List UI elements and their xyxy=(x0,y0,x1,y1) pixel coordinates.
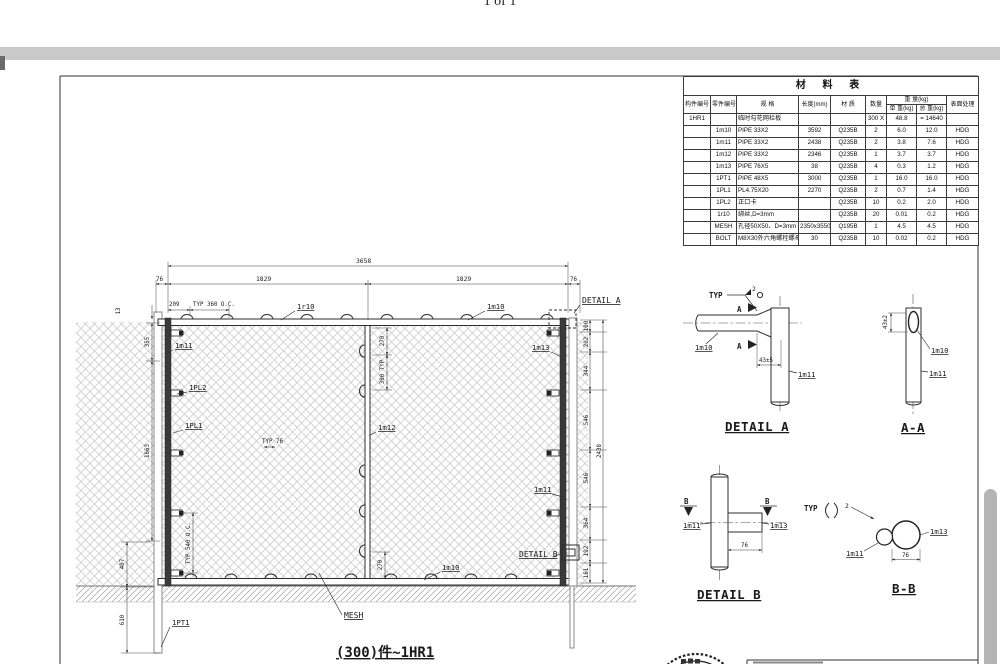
table-cell: 30 xyxy=(799,234,831,246)
dim-label: 76 xyxy=(156,277,163,283)
dim-label: TYP 360 O.C. xyxy=(193,302,235,308)
table-cell xyxy=(684,186,711,198)
table-cell: 1.2 xyxy=(917,162,947,174)
section-letter: A xyxy=(737,305,742,314)
table-row: 1PT1PIPE 48X53000Q235B116.016.0HDG xyxy=(684,174,979,186)
table-cell: Q235B xyxy=(831,138,866,150)
dim-label: 43±5 xyxy=(759,358,773,364)
table-row: BOLTM8X30外六角螺栓螺母30Q235B100.020.2HDG xyxy=(684,234,979,246)
table-cell: 16.0 xyxy=(887,174,917,186)
table-cell: 绑丝,D=3mm xyxy=(737,210,799,222)
dim-label: 192 xyxy=(584,546,590,556)
col-header: 材 质 xyxy=(831,96,866,114)
table-cell: 4 xyxy=(866,162,887,174)
table-cell: 孔径50X50、D=3mm xyxy=(737,222,799,234)
table-cell: HDG xyxy=(947,126,979,138)
table-row: 1m13PIPE 76X538Q235B40.31.2HDG xyxy=(684,162,979,174)
table-cell: 300 X xyxy=(866,114,887,126)
dim-label: 610 xyxy=(120,614,126,625)
vertical-scrollbar-thumb[interactable] xyxy=(984,489,997,664)
table-row: 1r10绑丝,D=3mmQ235B200.010.2HDG xyxy=(684,210,979,222)
table-cell: 12.0 xyxy=(917,126,947,138)
table-row: 1m12PIPE 33X22346Q235B13.73.7HDG xyxy=(684,150,979,162)
drawing-viewer: 1 of 1 xyxy=(0,0,1000,664)
table-cell: M8X30外六角螺栓螺母 xyxy=(737,234,799,246)
table-cell xyxy=(684,162,711,174)
col-header: 表面处理 xyxy=(947,96,979,114)
table-cell: Q235B xyxy=(831,186,866,198)
table-row: 1HR1临时勾花网栏板300 X48.8= 14640 xyxy=(684,114,979,126)
table-cell: PIPE 76X5 xyxy=(737,162,799,174)
table-cell: 0.2 xyxy=(887,198,917,210)
table-cell: 4.5 xyxy=(917,222,947,234)
table-row: 1m11PIPE 33X22438Q235B23.87.6HDG xyxy=(684,138,979,150)
dim-label: 364 xyxy=(584,517,590,528)
table-cell: 1m13 xyxy=(711,162,737,174)
dim-label: TYP 76 xyxy=(262,439,283,445)
table-cell: 2438 xyxy=(799,138,831,150)
table-cell: 10 xyxy=(866,198,887,210)
dim-label: 1829 xyxy=(456,276,471,283)
post-1PT1 xyxy=(154,312,162,653)
table-cell: Q235B xyxy=(831,174,866,186)
table-cell: 7.6 xyxy=(917,138,947,150)
dim-label: 43±2 xyxy=(883,315,889,329)
part-label: 1m11 xyxy=(798,370,816,379)
table-cell xyxy=(684,198,711,210)
table-cell: 4.5 xyxy=(887,222,917,234)
table-cell: HDG xyxy=(947,234,979,246)
col-header: 构件编号 xyxy=(684,96,711,114)
table-cell: 2346 xyxy=(799,150,831,162)
part-label: 1m11 xyxy=(175,341,193,350)
table-cell xyxy=(799,198,831,210)
dim-label: 546 xyxy=(584,414,590,425)
section-aa-view: 43±2 1m10 1m11 A-A xyxy=(883,294,949,435)
dim-label: 407 xyxy=(120,558,126,569)
table-cell: Q195B xyxy=(831,222,866,234)
table-cell xyxy=(947,114,979,126)
part-label: 1m10 xyxy=(442,563,460,572)
part-label: 1m11 xyxy=(534,485,552,494)
part-label: 1m11 xyxy=(929,369,947,378)
dim-label: 270 xyxy=(380,335,386,346)
table-cell: 16.0 xyxy=(917,174,947,186)
part-label: 1m12 xyxy=(378,423,396,432)
table-cell: 0.2 xyxy=(917,234,947,246)
table-cell: MESH xyxy=(711,222,737,234)
table-cell: 1 xyxy=(866,150,887,162)
part-label: 1PT1 xyxy=(172,618,190,627)
table-cell xyxy=(684,138,711,150)
dim-label: 76 xyxy=(570,277,577,283)
table-cell: 1m11 xyxy=(711,138,737,150)
table-cell xyxy=(684,210,711,222)
materials-table: 材 料 表 构件编号 零件编号 规 格 长度(mm) 材 质 数量 重 量(kg… xyxy=(683,76,979,246)
table-cell: Q235B xyxy=(831,162,866,174)
view-title: A-A xyxy=(901,420,925,435)
weld-typ-label: TYP xyxy=(804,504,818,513)
section-letter: A xyxy=(737,342,742,351)
table-cell xyxy=(684,174,711,186)
part-label: 1r10 xyxy=(297,302,315,311)
section-letter: B xyxy=(684,497,689,506)
table-cell xyxy=(831,114,866,126)
chain-link-mesh xyxy=(76,322,588,585)
col-header: 零件编号 xyxy=(711,96,737,114)
table-cell: HDG xyxy=(947,174,979,186)
table-cell: 1 xyxy=(866,174,887,186)
dim-label: 76 xyxy=(902,553,909,559)
table-cell xyxy=(711,114,737,126)
col-header: 长度(mm) xyxy=(799,96,831,114)
table-cell: 1PT1 xyxy=(711,174,737,186)
table-row: 1PL1PL4.75X202270Q235B20.71.4HDG xyxy=(684,186,979,198)
table-cell: 0.02 xyxy=(887,234,917,246)
table-cell: HDG xyxy=(947,186,979,198)
table-cell: 1HR1 xyxy=(684,114,711,126)
table-cell: 1m10 xyxy=(711,126,737,138)
dim-label: 161 xyxy=(584,567,590,578)
part-label: 1m13 xyxy=(770,521,788,530)
table-cell: 3000 xyxy=(799,174,831,186)
view-title: DETAIL A xyxy=(725,419,789,434)
table-cell: HDG xyxy=(947,198,979,210)
table-cell: HDG xyxy=(947,222,979,234)
table-cell xyxy=(684,150,711,162)
table-cell: 48.8 xyxy=(887,114,917,126)
dim-label: 209 xyxy=(169,302,180,308)
center-pipe-1m12 xyxy=(365,326,370,579)
table-cell: 2 xyxy=(866,126,887,138)
table-cell: 10 xyxy=(866,234,887,246)
view-title: DETAIL B xyxy=(697,587,761,602)
dim-label: TYP 540 O.C. xyxy=(186,522,192,564)
table-cell xyxy=(684,126,711,138)
table-cell: 20 xyxy=(866,210,887,222)
table-cell: PIPE 33X2 xyxy=(737,150,799,162)
part-label: 1PL1 xyxy=(185,421,203,430)
table-cell: 2270 xyxy=(799,186,831,198)
weld-symbol: TYP 2 xyxy=(804,503,874,519)
col-header: 规 格 xyxy=(737,96,799,114)
table-row: MESH孔径50X50、D=3mm2350x3550Q195B14.54.5HD… xyxy=(684,222,979,234)
detail-b-view: B B 1m11 1m13 76 DETAIL B xyxy=(680,465,788,602)
dim-label: 355 xyxy=(145,336,151,347)
table-cell: 6.0 xyxy=(887,126,917,138)
table-cell: 3.7 xyxy=(917,150,947,162)
table-cell: 0.2 xyxy=(917,210,947,222)
table-cell: 0.7 xyxy=(887,186,917,198)
table-cell: HDG xyxy=(947,210,979,222)
table-cell: 3.7 xyxy=(887,150,917,162)
dim-label: 100 xyxy=(584,320,590,331)
mesh-label: MESH xyxy=(344,611,363,620)
table-cell: HDG xyxy=(947,162,979,174)
dim-label: 546 xyxy=(584,472,590,483)
section-letter: B xyxy=(765,497,770,506)
section-cut-a: A A xyxy=(737,303,757,351)
part-label: 1PL2 xyxy=(189,383,207,392)
dim-label: 300 TYP xyxy=(380,359,386,384)
table-cell: Q235B xyxy=(831,234,866,246)
table-cell: = 14640 xyxy=(917,114,947,126)
part-label: 1m13 xyxy=(930,527,948,536)
table-cell: 2350x3550 xyxy=(799,222,831,234)
dim-label: 1829 xyxy=(256,276,271,283)
detail-a-view: TYP 2 A A 43±5 1m10 1m11 DETAIL A xyxy=(683,286,816,434)
section-bb-view: TYP 2 1m13 1m11 76 B-B xyxy=(804,503,948,596)
right-post-face xyxy=(569,318,577,586)
table-cell: Q235B xyxy=(831,198,866,210)
table-row: 1m10PIPE 33X23592Q235B26.012.0HDG xyxy=(684,126,979,138)
weld-typ-label: TYP xyxy=(709,291,723,300)
dim-label: 3658 xyxy=(356,258,371,265)
table-cell: 1 xyxy=(866,222,887,234)
table-cell: 2 xyxy=(866,186,887,198)
table-cell: Q235B xyxy=(831,150,866,162)
dim-label: 344 xyxy=(584,365,590,376)
materials-table-rows: 1HR1临时勾花网栏板300 X48.8= 146401m10PIPE 33X2… xyxy=(684,114,979,246)
col-header: 总 重(kg) xyxy=(917,105,947,114)
part-label: 1m11 xyxy=(683,521,701,530)
dim-label: 1663 xyxy=(145,444,151,458)
part-label: 1m11 xyxy=(846,549,864,558)
top-rail-1m10 xyxy=(158,319,573,326)
table-cell: PIPE 48X5 xyxy=(737,174,799,186)
elevation-title: (300)件~1HR1 xyxy=(336,644,434,661)
col-header: 重 量(kg) xyxy=(887,96,947,105)
dim-label: 202 xyxy=(584,337,590,347)
table-cell: 1PL1 xyxy=(711,186,737,198)
table-cell: 临时勾花网栏板 xyxy=(737,114,799,126)
company-seal-stamp xyxy=(653,654,739,664)
view-title: B-B xyxy=(892,581,916,596)
table-cell: PIPE 33X2 xyxy=(737,126,799,138)
table-cell: 1r10 xyxy=(711,210,737,222)
dim-label: 76 xyxy=(741,543,748,549)
table-cell xyxy=(799,114,831,126)
table-cell xyxy=(684,222,711,234)
detail-a-callout-label: DETAIL A xyxy=(582,296,621,305)
weld-size-label: 2 xyxy=(845,503,849,510)
part-label: 1m10 xyxy=(931,346,949,355)
dim-label: 2438 xyxy=(597,444,603,458)
table-cell xyxy=(799,210,831,222)
table-cell: HDG xyxy=(947,138,979,150)
weld-size-label: 2 xyxy=(752,286,756,293)
part-label: 1m10 xyxy=(487,302,505,311)
table-row: 1PL2正口卡Q235B100.22.0HDG xyxy=(684,198,979,210)
table-cell: 0.3 xyxy=(887,162,917,174)
part-label: 1m10 xyxy=(695,343,713,352)
left-frame-pipe-1m11 xyxy=(165,318,171,586)
part-label: 1m13 xyxy=(532,343,550,352)
table-cell: HDG xyxy=(947,150,979,162)
table-cell: 1m12 xyxy=(711,150,737,162)
fence-elevation: 3658 76 1829 1829 76 209 TYP 360 O.C. 13… xyxy=(76,258,636,661)
col-header: 单 重(kg) xyxy=(887,105,917,114)
table-cell: Q235B xyxy=(831,126,866,138)
table-cell xyxy=(684,234,711,246)
table-cell: 2 xyxy=(866,138,887,150)
detail-b-callout-label: DETAIL B xyxy=(519,550,558,559)
table-cell: 3592 xyxy=(799,126,831,138)
title-block-partial xyxy=(747,660,978,664)
table-cell: 0.01 xyxy=(887,210,917,222)
table-cell: PL4.75X20 xyxy=(737,186,799,198)
right-frame-pipe-1m11 xyxy=(560,318,566,586)
right-stake xyxy=(570,586,574,648)
bottom-rail-1m10 xyxy=(158,579,573,586)
table-cell: PIPE 33X2 xyxy=(737,138,799,150)
table-cell: 1PL2 xyxy=(711,198,737,210)
table-cell: 正口卡 xyxy=(737,198,799,210)
table-cell: 38 xyxy=(799,162,831,174)
table-cell: 3.8 xyxy=(887,138,917,150)
table-cell: 1.4 xyxy=(917,186,947,198)
table-cell: Q235B xyxy=(831,210,866,222)
table-title: 材 料 表 xyxy=(684,77,979,96)
col-header: 数量 xyxy=(866,96,887,114)
table-cell: 2.0 xyxy=(917,198,947,210)
dim-label: 13 xyxy=(116,307,122,314)
dim-label: 270 xyxy=(378,559,384,570)
table-cell: BOLT xyxy=(711,234,737,246)
